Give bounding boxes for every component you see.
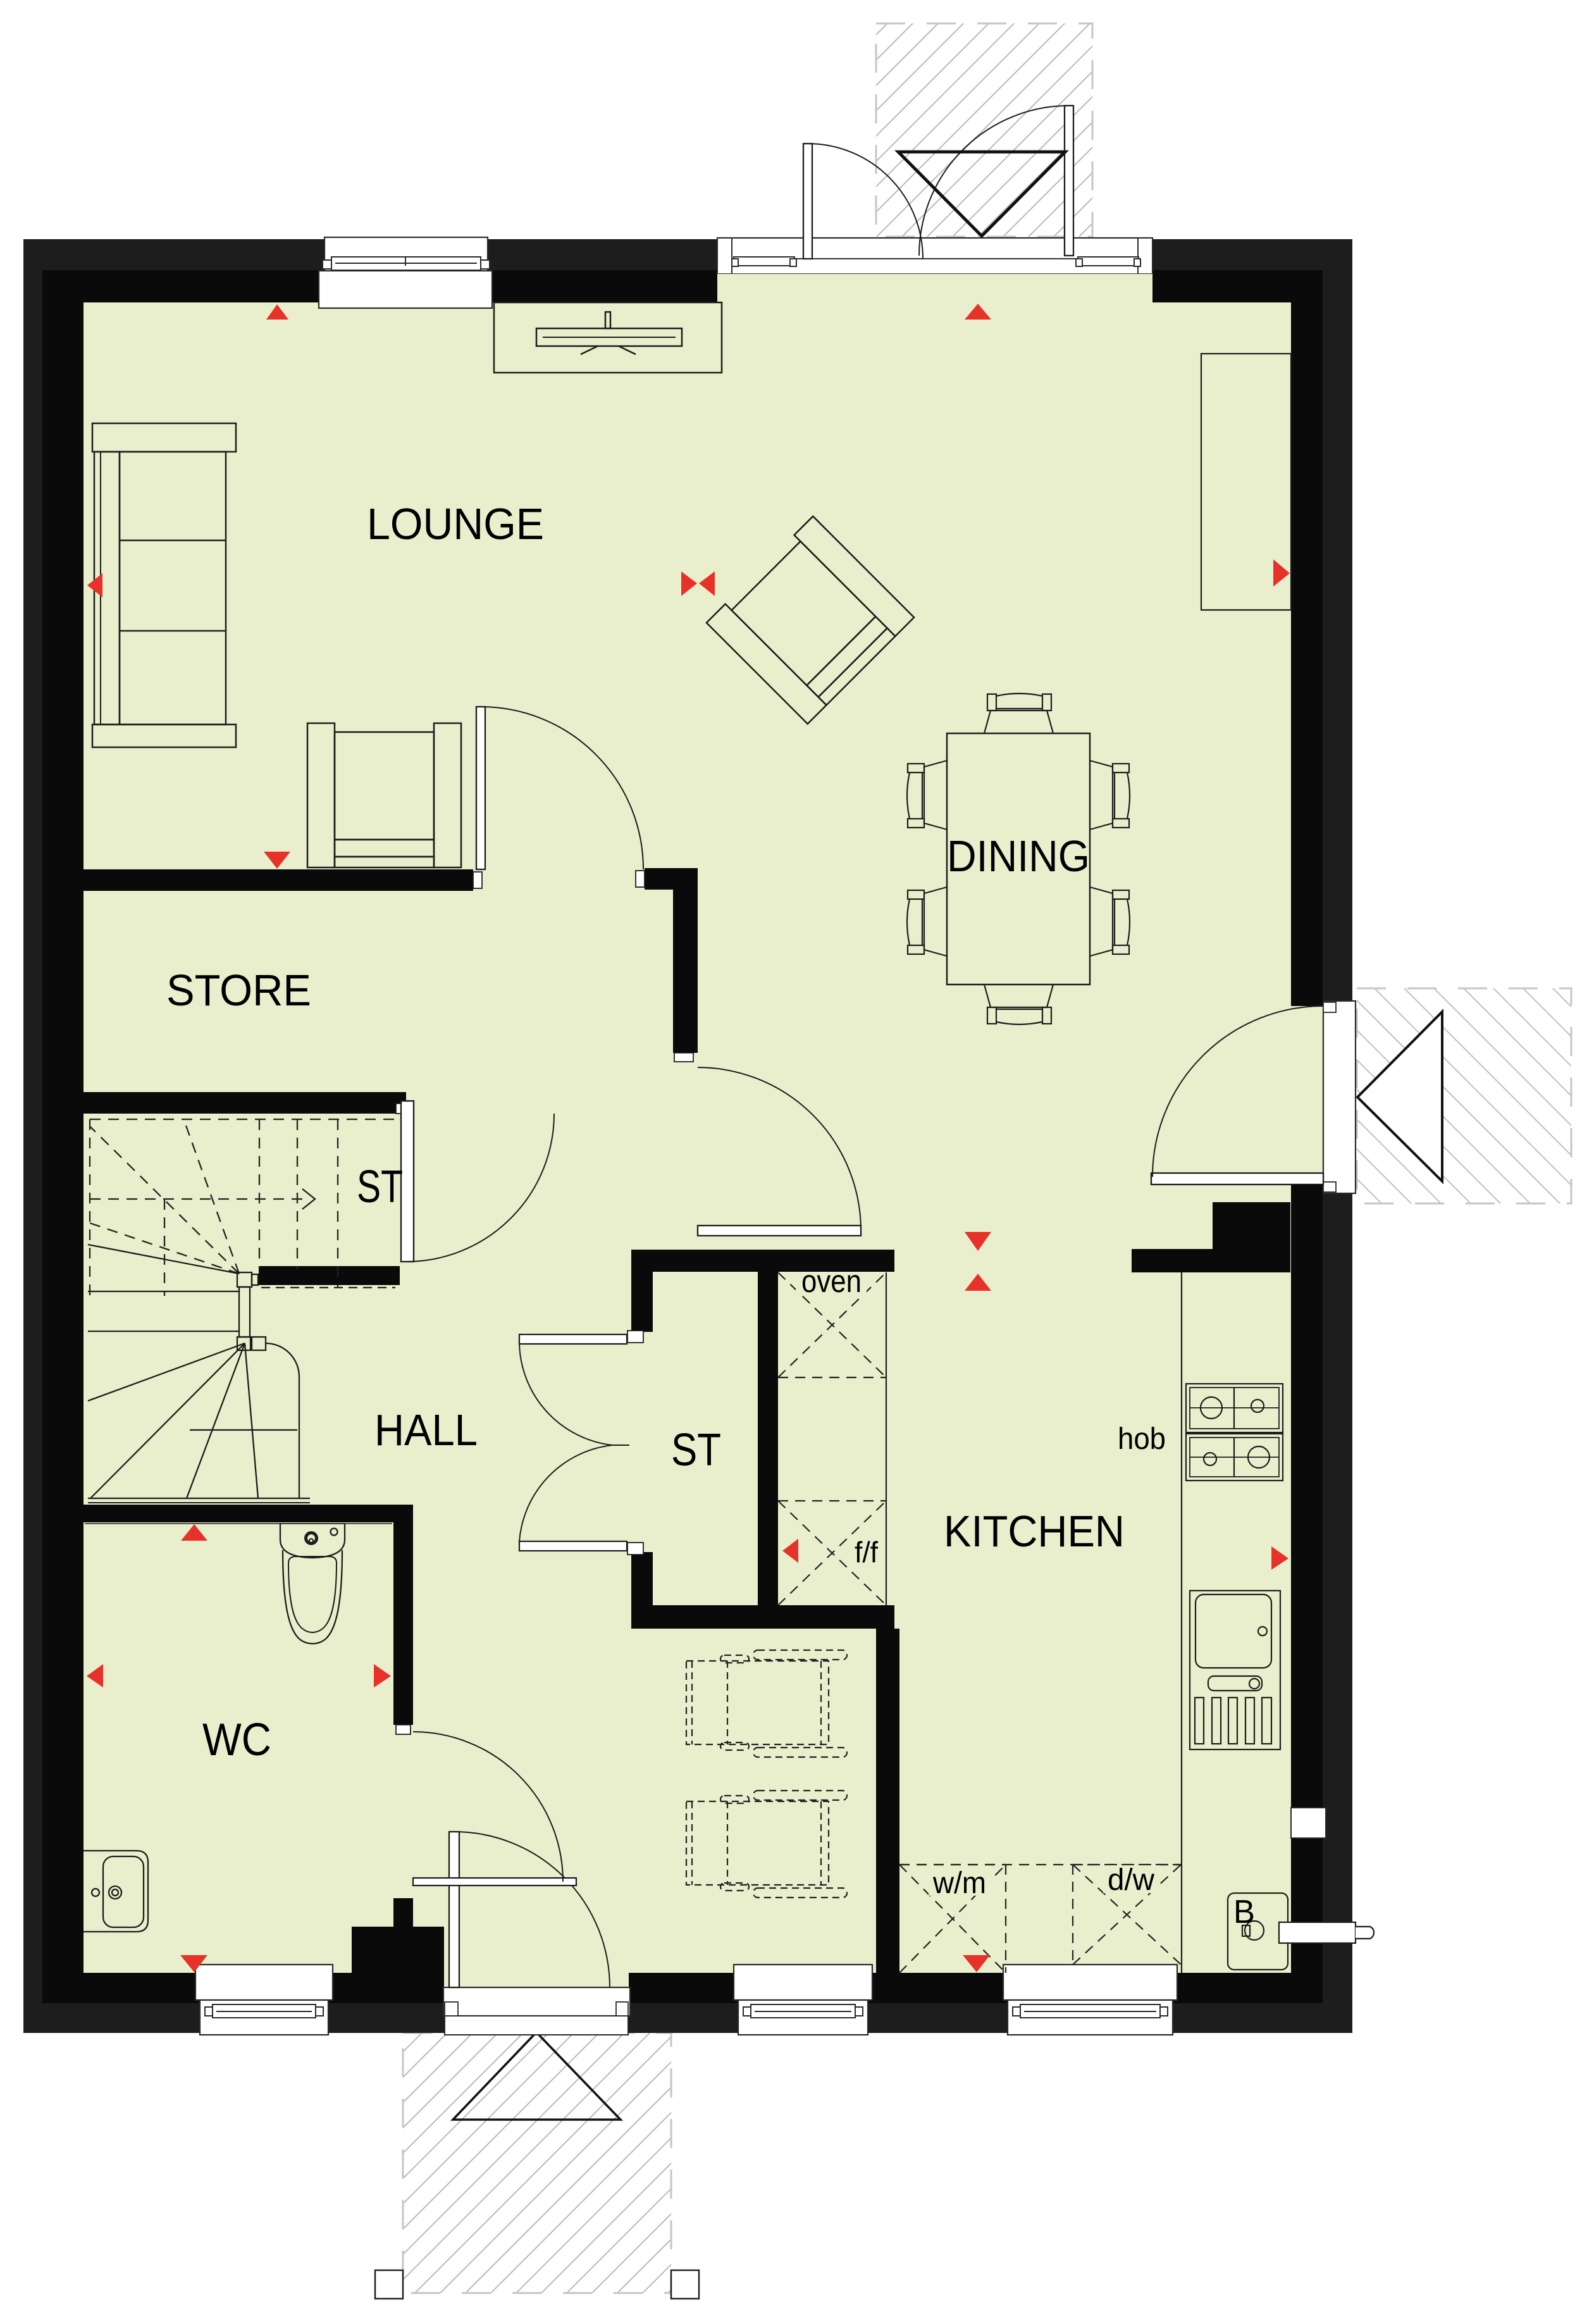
svg-text:DINING: DINING: [947, 831, 1090, 881]
svg-text:d/w: d/w: [1108, 1863, 1154, 1897]
svg-text:KITCHEN: KITCHEN: [944, 1507, 1125, 1556]
svg-text:hob: hob: [1118, 1422, 1166, 1456]
svg-text:B: B: [1233, 1894, 1255, 1930]
svg-text:LOUNGE: LOUNGE: [367, 499, 544, 549]
svg-text:f/f: f/f: [855, 1536, 878, 1569]
svg-text:WC: WC: [202, 1715, 271, 1765]
svg-text:STORE: STORE: [166, 966, 311, 1015]
svg-text:ST: ST: [357, 1162, 403, 1212]
svg-text:oven: oven: [801, 1264, 862, 1299]
svg-text:ST: ST: [671, 1425, 721, 1476]
svg-text:HALL: HALL: [374, 1405, 478, 1455]
svg-text:w/m: w/m: [932, 1867, 986, 1900]
